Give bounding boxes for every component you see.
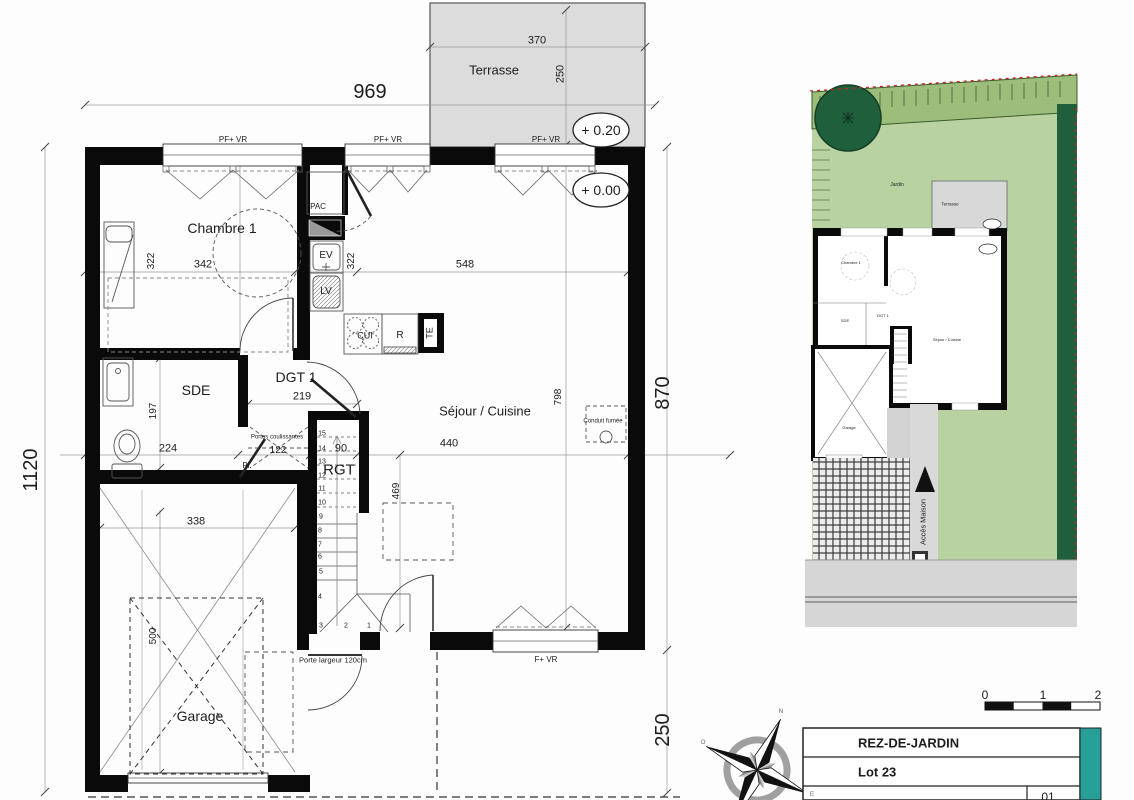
compass-n: N — [779, 709, 784, 716]
site-jardin: Jardin — [890, 183, 904, 188]
site-mini-dgt: DGT 1 — [877, 314, 889, 318]
dim-342: 342 — [194, 260, 212, 271]
road — [805, 560, 1077, 627]
scale-1: 1 — [1040, 689, 1047, 701]
dim-224: 224 — [159, 444, 177, 455]
equip-cui: CUI — [357, 332, 373, 341]
dim-440: 440 — [440, 439, 458, 450]
dim-right-height: 870 — [653, 376, 673, 409]
stair-8: 8 — [318, 528, 322, 535]
terrasse-label: Terrasse — [469, 64, 519, 77]
compass-e: E — [810, 792, 814, 799]
garage-graphics — [100, 488, 295, 774]
dim-90: 90 — [335, 444, 347, 455]
accent-strip — [1080, 728, 1101, 800]
site-terrasse: Terrasse — [941, 202, 958, 207]
paving — [813, 458, 910, 560]
room-chambre: Chambre 1 — [187, 221, 256, 235]
dim-122: 122 — [270, 446, 287, 456]
note-placard: Pl. — [242, 462, 251, 470]
toilet — [114, 430, 140, 462]
stair-2: 2 — [344, 623, 348, 630]
site-mini-chambre: Chambre 1 — [841, 261, 861, 265]
scale-0: 0 — [982, 689, 989, 701]
room-dgt: DGT 1 — [276, 370, 317, 384]
equip-r: R — [396, 331, 403, 341]
scale-2: 2 — [1095, 689, 1102, 701]
dim-terrasse-width: 370 — [528, 36, 546, 47]
dim-322b: 322 — [347, 253, 357, 270]
floor-plan-sheet: 969 1120 870 250 Terrasse 370 250 + 0.20… — [0, 0, 1134, 800]
dim-total-width: 969 — [353, 82, 386, 102]
compass-o: O — [700, 740, 705, 747]
note-porte-garage: Porte largeur 120cm — [299, 656, 367, 664]
equip-pac: PAC — [310, 203, 326, 211]
window-label-1: PF+ VR — [219, 136, 247, 144]
dim-right-lower: 250 — [653, 713, 673, 746]
site-mini-garage: Garage — [842, 426, 855, 430]
stair-14: 14 — [318, 446, 326, 453]
note-conduit: Conduit fumée — [583, 418, 622, 424]
site-mini-sde: SDE — [841, 319, 849, 323]
dim-469: 469 — [392, 483, 402, 500]
stair-1: 1 — [367, 623, 371, 630]
stair-10: 10 — [318, 500, 326, 507]
site-plan — [805, 74, 1077, 627]
dim-548: 548 — [456, 260, 474, 271]
equip-lv: LV — [320, 287, 332, 297]
site-acces-maison: Accès Maison — [920, 499, 927, 545]
stair-9: 9 — [319, 514, 323, 521]
room-sde: SDE — [182, 383, 211, 397]
stair-13: 13 — [318, 459, 326, 466]
dim-197: 197 — [149, 403, 159, 420]
window-label-2: PF+ VR — [374, 136, 402, 144]
level-ground: + 0.00 — [581, 183, 620, 197]
stair-15: 15 — [318, 431, 326, 438]
planting-strip — [1057, 104, 1077, 560]
equip-ev: EV — [319, 251, 332, 261]
stair-5: 5 — [319, 569, 323, 576]
bed — [104, 222, 134, 308]
dim-219: 219 — [293, 392, 311, 403]
note-portes-coulissantes: Portes coulissantes — [251, 434, 303, 440]
title-lot: Lot 23 — [858, 766, 896, 779]
room-garage: Garage — [177, 709, 224, 723]
stair-11: 11 — [318, 486, 325, 493]
title-floor: REZ-DE-JARDIN — [858, 737, 959, 750]
dim-500: 500 — [149, 628, 159, 645]
dim-338: 338 — [187, 517, 205, 528]
stair-4: 4 — [318, 594, 322, 601]
window-label-4: F+ VR — [535, 656, 558, 664]
stair-12: 12 — [318, 473, 326, 480]
window-label-3: PF+ VR — [532, 136, 560, 144]
title-number: 01 — [1041, 791, 1054, 800]
dim-terrasse-depth: 250 — [556, 65, 567, 83]
stair-6: 6 — [318, 554, 322, 561]
equip-te: TE — [426, 327, 435, 339]
dim-322a: 322 — [147, 253, 157, 270]
dim-total-height: 1120 — [21, 448, 41, 491]
room-sejour: Séjour / Cuisine — [439, 405, 531, 418]
site-mini-sejour: Séjour / Cuisine — [933, 338, 961, 342]
dashed-annotations — [88, 406, 680, 797]
stair-7: 7 — [318, 542, 322, 549]
walls — [85, 147, 645, 792]
plan-drawing — [0, 0, 1134, 800]
scale-bar — [985, 702, 1100, 710]
level-terrace: + 0.20 — [581, 123, 620, 137]
dim-798: 798 — [554, 389, 564, 406]
fixtures — [103, 172, 418, 478]
room-rgt: RGT — [323, 463, 355, 478]
stair-3: 3 — [319, 623, 323, 630]
